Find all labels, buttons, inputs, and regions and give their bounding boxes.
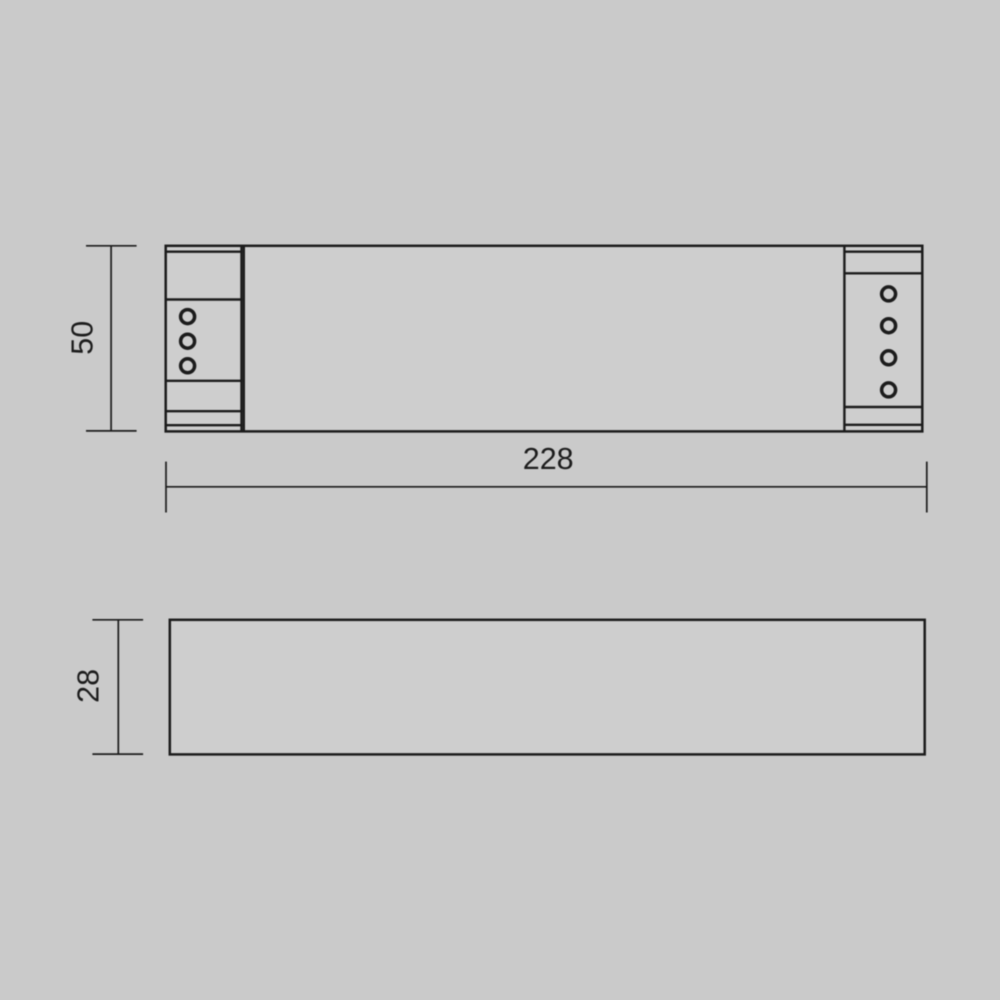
- svg-text:50: 50: [66, 321, 100, 355]
- svg-text:28: 28: [71, 669, 105, 703]
- svg-text:228: 228: [523, 442, 574, 476]
